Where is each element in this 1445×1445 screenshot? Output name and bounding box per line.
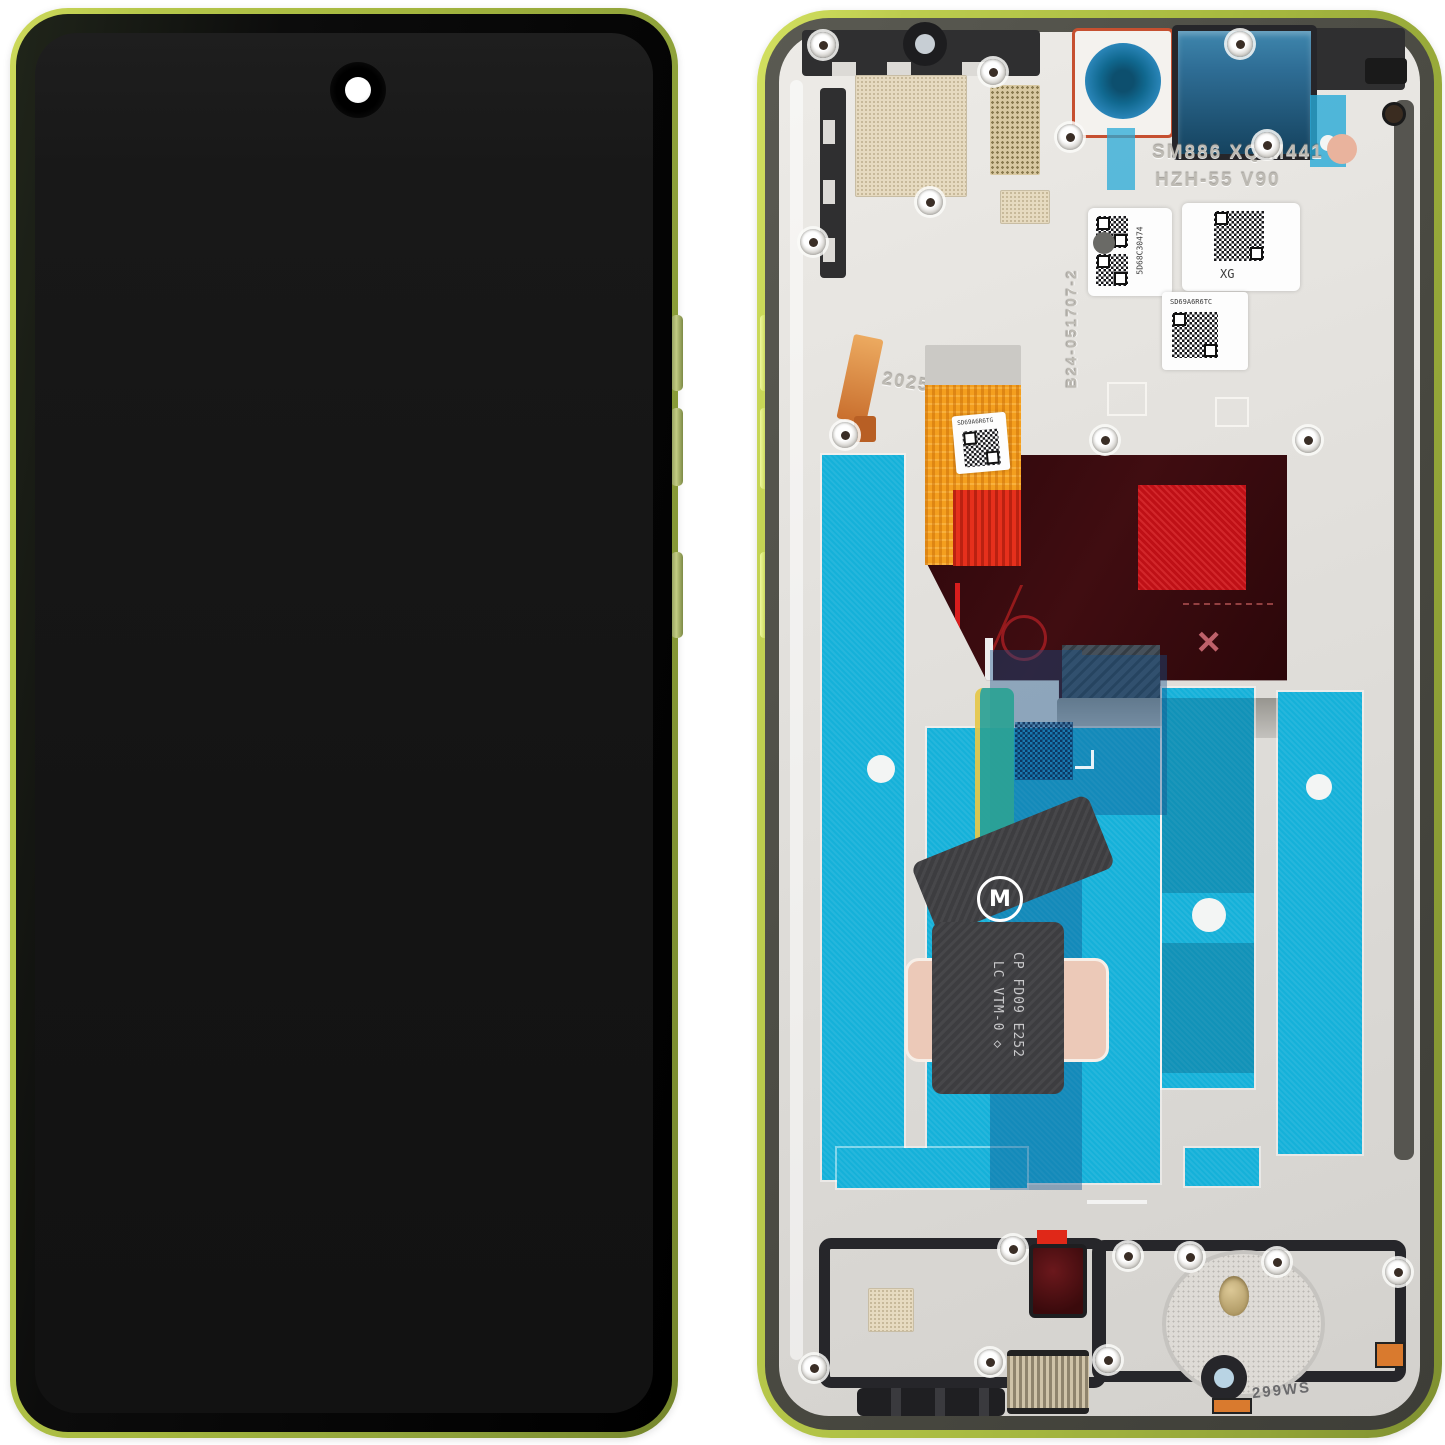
screw-hole (1227, 31, 1253, 57)
screw-hole (1057, 124, 1083, 150)
charging-contact (1375, 1342, 1405, 1368)
datamatrix-corner-bracket (1075, 750, 1094, 769)
sticker-code-mid: SD69A6R6TC (1170, 298, 1212, 306)
qr-sticker-flex: SD69A6R6TG (952, 412, 1011, 474)
screw-hole (1092, 427, 1118, 453)
film-dot (1306, 774, 1332, 800)
qr-code-icon (1214, 211, 1264, 261)
screw-hole (832, 422, 858, 448)
microphone-hole (1201, 1355, 1247, 1401)
red-adhesive-mesh (1138, 485, 1246, 590)
loudspeaker-mesh-grille (1007, 1350, 1089, 1414)
camera-pull-tab (1107, 128, 1135, 190)
qr-sticker-right: XG (1182, 203, 1300, 291)
engraved-model-line2: HZH-55 V90 (1155, 170, 1281, 192)
phone-front-view (10, 8, 678, 1438)
chip-black (1365, 58, 1407, 84)
front-camera-punch-hole (330, 62, 386, 118)
screw-hole (801, 1355, 827, 1381)
bracket-notch (832, 62, 856, 76)
panel-dash-marks (1183, 603, 1273, 605)
left-silver-rail (790, 80, 803, 1360)
adhesive-mesh-patch-large (855, 75, 967, 197)
qr-code-icon (1172, 312, 1218, 358)
sticker-code-left: 5D68C30474 (1136, 226, 1145, 274)
sensor-lens (915, 34, 935, 54)
film-overlay-dark (1162, 943, 1254, 1073)
frame-hole-gray (1093, 232, 1115, 254)
screw-hole (1095, 1347, 1121, 1373)
qr-sticker-mid: SD69A6R6TC (1162, 292, 1248, 370)
frame-outline-square (1215, 397, 1249, 427)
product-photo: SM886 XQ M441 HZH-55 V90 B24-051707-2 20… (0, 0, 1445, 1445)
adhesive-mesh-patch-bottom (868, 1288, 914, 1332)
display-assembly-back-view: SM886 XQ M441 HZH-55 V90 B24-051707-2 20… (757, 10, 1442, 1438)
flex-print-line2: LC VTM-0 ◇ (987, 920, 1007, 1090)
screw-hole (1385, 1259, 1411, 1285)
datamatrix-code-icon (1015, 722, 1073, 780)
right-gasket-strip (1394, 100, 1414, 1160)
screw-hole (1295, 427, 1321, 453)
microphone-membrane (1214, 1368, 1234, 1388)
front-camera-lens-icon (345, 77, 371, 103)
display-flex-translucent-wing (1082, 655, 1167, 815)
qr-code-icon (1096, 254, 1128, 286)
frame-mark (1087, 1200, 1147, 1204)
protective-film-right-strip (1278, 692, 1362, 1154)
screw-hole (810, 32, 836, 58)
screw-hole (977, 1349, 1003, 1375)
sticker-code-flex: SD69A6R6TG (957, 417, 994, 427)
adhesive-mesh-patch-gold (990, 85, 1040, 175)
proximity-sensor-hole (903, 22, 947, 66)
front-screen (35, 33, 653, 1413)
screw-hole (1254, 132, 1280, 158)
front-bezel (16, 14, 672, 1432)
volume-down-button (671, 408, 683, 486)
film-dot (1192, 898, 1226, 932)
gasket-notch (823, 180, 835, 204)
frame-outline-square (1107, 382, 1147, 416)
film-dot (867, 755, 895, 783)
flex-print-line1: CP FD09 E252 (1007, 920, 1027, 1090)
screw-hole (1177, 1244, 1203, 1270)
screw-hole (1000, 1236, 1026, 1262)
screw-hole (1264, 1249, 1290, 1275)
protective-film-left-strip (822, 455, 904, 1180)
front-camera-lens-protector (1085, 43, 1161, 119)
charging-contact-small (1212, 1398, 1252, 1414)
sticker-code-right: XG (1220, 267, 1234, 281)
red-sensor-window (1029, 1244, 1087, 1318)
engraved-model-line1: SM886 XQ M441 (1152, 142, 1324, 164)
protective-film-mid-strip (1162, 688, 1254, 1088)
screw-hole (917, 189, 943, 215)
protective-film-bottom-right (1185, 1148, 1259, 1186)
flex-connector-shield (925, 345, 1021, 387)
qr-code-icon (962, 428, 1001, 467)
adhesive-mesh-patch-small (1000, 190, 1050, 224)
screw-hole (1115, 1243, 1141, 1269)
volume-up-button (671, 315, 683, 391)
power-button (671, 552, 683, 638)
frame-hole-dark (1382, 102, 1406, 126)
screw-hole (800, 229, 826, 255)
front-camera-module (1072, 28, 1174, 138)
flex-print-text: CP FD09 E252 LC VTM-0 ◇ (967, 920, 1027, 1090)
motorola-logo: M (977, 876, 1023, 922)
panel-x-mark: × (1197, 620, 1220, 665)
screw-hole (980, 59, 1006, 85)
orange-flex-over-panel (953, 490, 1021, 566)
bracket-notch (887, 62, 911, 76)
film-overlay-dark (1162, 698, 1254, 893)
bottom-port-bar (857, 1388, 1005, 1416)
bottom-red-component (1025, 1230, 1083, 1314)
gasket-notch (823, 120, 835, 144)
speaker-port-gold (1219, 1276, 1249, 1316)
pink-adhesive-dot (1327, 134, 1357, 164)
engraved-serial-vertical: B24-051707-2 (1064, 244, 1081, 414)
